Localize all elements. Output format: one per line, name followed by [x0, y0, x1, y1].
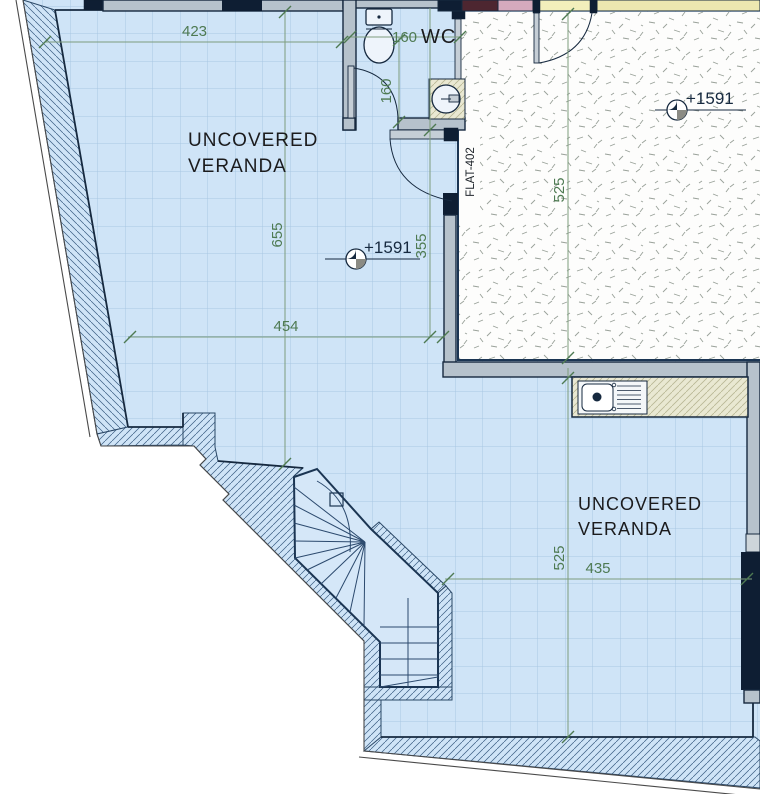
wc-basin-icon: [429, 79, 465, 119]
dimension-label-lower-width: 435: [585, 560, 610, 577]
band-navy-segment: [438, 0, 462, 11]
dimension-label-wc-depth: 160: [378, 78, 395, 103]
east-wall-plate: [746, 534, 760, 552]
dimension-label-top-width: 423: [182, 23, 207, 40]
stair-bottom-band: [364, 687, 452, 700]
dimension-label-flat-depth: 525: [551, 177, 568, 202]
flat-door-leaf: [390, 130, 446, 139]
wc-label: WC: [421, 26, 456, 48]
band-yellow-segment: [533, 0, 597, 11]
dimension-label-veranda-height: 655: [269, 222, 286, 247]
kitchen-counter: [572, 377, 748, 417]
top-wall-column: [222, 0, 262, 11]
wc-door-leaf: [348, 66, 354, 118]
flat-interior: [458, 12, 760, 360]
flat-number-label: FLAT-402: [465, 147, 477, 197]
band-khaki-segment: [597, 0, 760, 11]
dimension-label-lower-depth: 525: [551, 545, 568, 570]
parapet-bottom-wedge: [364, 737, 760, 788]
floor-plan-canvas: 423 160 160 655 355 454 525 525 435 +159…: [0, 0, 760, 794]
kitchen-sink-icon: [578, 381, 647, 414]
flat-door-post-right: [590, 0, 597, 13]
band-maroon-segment: [462, 0, 498, 11]
top-color-band: [438, 0, 760, 13]
level-label-flat: +1591: [686, 89, 734, 108]
veranda-upper-label-line2: VERANDA: [188, 156, 287, 177]
veranda-lower-label-line1: UNCOVERED: [578, 494, 702, 514]
flat-west-wall: [444, 215, 456, 365]
entry-door-leaf: [534, 13, 539, 63]
top-wall-end-column: [84, 0, 103, 10]
level-label-veranda: +1591: [364, 238, 412, 257]
east-column-base: [744, 690, 760, 703]
dimension-label-veranda-width: 454: [273, 318, 298, 335]
flat-south-wall: [443, 362, 760, 377]
flat-door-post-left: [533, 0, 540, 13]
toilet-icon: [364, 9, 394, 63]
east-column: [741, 552, 760, 690]
flat-door-hinge: [444, 128, 458, 141]
dimension-label-wc-width: 160: [392, 29, 417, 46]
flat-floor-stipple: [458, 12, 760, 360]
dimension-label-veranda-mid: 355: [413, 233, 430, 258]
veranda-upper-label-line1: UNCOVERED: [188, 130, 318, 151]
wc-bottom-wall-left: [343, 118, 355, 130]
floor-plan-drawing: 423 160 160 655 355 454 525 525 435 +159…: [0, 0, 760, 794]
mid-column: [443, 193, 458, 215]
stair-side-band: [438, 586, 452, 688]
band-pink-segment: [498, 0, 533, 11]
veranda-lower-label-line2: VERANDA: [578, 519, 672, 539]
east-wall: [747, 362, 760, 558]
